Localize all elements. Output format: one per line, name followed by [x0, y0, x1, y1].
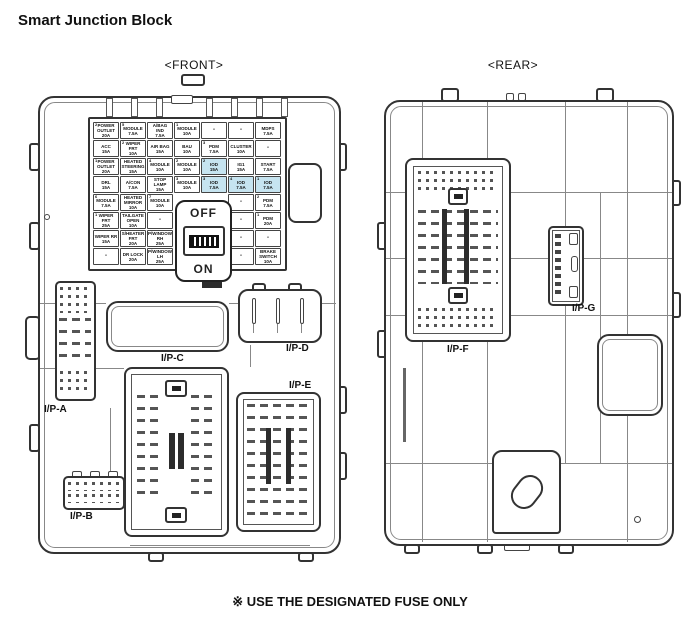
fuse-iod: 4IOD7.5A — [228, 176, 254, 193]
fuse-slot-empty: - — [147, 212, 173, 229]
fuse-p-window-rh: P/WINDOW RH25A — [147, 230, 173, 247]
fuse-ig1: IG115A — [228, 158, 254, 175]
switch-rocker-grip — [189, 235, 219, 248]
ip-d-slot-stem — [277, 324, 278, 333]
fuse-module: 4MODULE10A — [147, 158, 173, 175]
fuse-slot-empty: - — [228, 122, 254, 139]
ip-b-pins — [68, 494, 120, 503]
ip-c-bottom-lock-slot — [172, 513, 181, 518]
front-top-slot — [171, 95, 193, 104]
switch-on-label: ON — [194, 262, 214, 276]
rib-line — [96, 368, 124, 369]
rib-line — [256, 98, 263, 117]
ip-d-slot — [252, 298, 256, 324]
ip-c-top-lock — [165, 380, 187, 397]
ip-g-key — [569, 233, 578, 245]
fuse-a-con: A/CON7.5A — [120, 176, 146, 193]
rear-pin-hole — [634, 516, 641, 523]
fuse-pdm: 3PDM7.5A — [201, 140, 227, 157]
fuse-iod: 3IOD7.5A — [201, 176, 227, 193]
fuse-s-heater-frt: S/HEATER FRT20A — [120, 230, 146, 247]
ip-c-label: I/P-C — [161, 353, 184, 364]
fuse-tailgate-open: TAILGATE OPEN10A — [120, 212, 146, 229]
fuse-air-bag: AIR BAG15A — [147, 140, 173, 157]
ip-f-bar — [442, 209, 447, 284]
fuse-slot-empty: - — [255, 140, 281, 157]
fuse-drl: DRL15A — [93, 176, 119, 193]
front-pin-hole — [44, 214, 50, 220]
fuse-a-bag-ind: A/BAG IND7.5A — [147, 122, 173, 139]
fuse-heated-steering: HEATED STEERING15A — [120, 158, 146, 175]
fuse-power-outlet: 2POWER OUTLET20A — [93, 122, 119, 139]
rear-view: I/P-F I/P-G — [350, 0, 700, 626]
ip-d-connector — [238, 289, 322, 343]
fuse-module: 6MODULE7.5A — [93, 194, 119, 211]
fuse-pdm: 1PDM20A — [255, 212, 281, 229]
switch-off-label: OFF — [190, 206, 217, 220]
rib-line — [250, 345, 251, 367]
switch-rocker[interactable] — [183, 226, 225, 256]
ip-c-bottom-lock — [165, 507, 187, 523]
front-top-mount-tab — [181, 74, 205, 86]
fuse-p-window-lh: P/WINDOW LH25A — [147, 248, 173, 265]
fuse-power-outlet: 1POWER OUTLET20A — [93, 158, 119, 175]
ip-c-pins-left — [137, 395, 163, 503]
ip-g-key — [569, 286, 578, 298]
rib-line — [131, 98, 138, 117]
fuse-mdps: MDPS7.5A — [255, 122, 281, 139]
ip-g-notch — [571, 256, 578, 272]
ip-a-slots — [59, 318, 91, 366]
fuse-module: 3MODULE10A — [174, 176, 200, 193]
fuse-stop-lamp: STOP LAMP15A — [147, 176, 173, 193]
fuse-acc: ACC15A — [93, 140, 119, 157]
rib-line — [130, 545, 310, 546]
fuse-pdm: 2PDM7.5A — [255, 194, 281, 211]
ip-f-top-lock-slot — [454, 194, 463, 199]
fuse-module: 7MODULE10A — [147, 194, 173, 211]
ip-a-pins-bottom — [60, 371, 90, 395]
fuse-slot-empty: - — [201, 122, 227, 139]
fuse-cluster: CLUSTER10A — [228, 140, 254, 157]
ip-f-bar — [464, 209, 469, 284]
fuse-slot-empty: - — [93, 248, 119, 265]
ip-d-slot-stem — [301, 324, 302, 333]
fuse-brake-switch: BRAKE SWITCH10A — [255, 248, 281, 265]
switch-base-tab — [202, 282, 222, 288]
fuse-module: 2MODULE10A — [174, 158, 200, 175]
fuse-iod: 1IOD7.5A — [255, 176, 281, 193]
ip-b-label: I/P-B — [70, 511, 93, 522]
fuse-heated-mirror: HEATED MIRROR10A — [120, 194, 146, 211]
front-view: 2POWER OUTLET20A5MODULE7.5AA/BAG IND7.5A… — [0, 0, 350, 626]
relay-cover-inner-line — [111, 306, 224, 347]
ip-e-bar — [286, 428, 291, 484]
ip-c-pins-right — [191, 395, 217, 503]
front-right-bracket — [288, 163, 322, 223]
rib-line — [106, 98, 113, 117]
ip-f-bottom-lock-slot — [454, 293, 463, 298]
ip-f-pins-bottom — [418, 308, 498, 328]
rib-line — [281, 98, 288, 117]
rear-left-rib-bar — [403, 368, 406, 442]
rib-line — [206, 98, 213, 117]
fuse-bau: BAU10A — [174, 140, 200, 157]
ip-c-center-bar — [169, 433, 175, 469]
ip-e-pins — [247, 404, 309, 520]
ip-d-slot — [276, 298, 280, 324]
fuse-module: 5MODULE7.5A — [120, 122, 146, 139]
rib-line — [627, 102, 628, 542]
ip-f-slots — [418, 210, 498, 284]
iod-switch[interactable]: OFF ON — [175, 200, 232, 282]
fuse-iod: 2IOD15A — [201, 158, 227, 175]
fuse-wiper-frt: 2WIPER FRT10A — [120, 140, 146, 157]
rib-line — [600, 192, 601, 463]
fuse-slot-empty: - — [255, 230, 281, 247]
ip-b-pins — [68, 482, 120, 491]
ip-c-top-lock-slot — [172, 386, 181, 391]
fuse-module: 1MODULE10A — [174, 122, 200, 139]
ip-e-label: I/P-E — [289, 380, 311, 391]
ip-f-bottom-lock — [448, 287, 468, 304]
ip-f-top-lock — [448, 188, 468, 205]
ip-a-pins-top — [60, 287, 90, 313]
rib-line — [231, 98, 238, 117]
fuse-dr-lock: DR LOCK20A — [120, 248, 146, 265]
ip-d-slot — [300, 298, 304, 324]
rib-line — [110, 408, 111, 476]
ip-e-bar — [266, 428, 271, 484]
ip-a-label: I/P-A — [44, 404, 67, 415]
fuse-wiper-rr: WIPER RR15A — [93, 230, 119, 247]
fuse-start: START7.5A — [255, 158, 281, 175]
ip-d-label: I/P-D — [286, 343, 309, 354]
fuse-wiper-frt: 1WIPER FRT25A — [93, 212, 119, 229]
ip-g-label: I/P-G — [572, 303, 595, 314]
rear-corner-module-inner — [602, 339, 658, 411]
ip-c-center-bar — [178, 433, 184, 469]
ip-g-pin-column — [555, 234, 561, 298]
footer-note: ※ USE THE DESIGNATED FUSE ONLY — [0, 594, 700, 610]
ip-f-label: I/P-F — [447, 344, 469, 355]
rib-line — [156, 98, 163, 117]
ip-d-slot-stem — [253, 324, 254, 333]
